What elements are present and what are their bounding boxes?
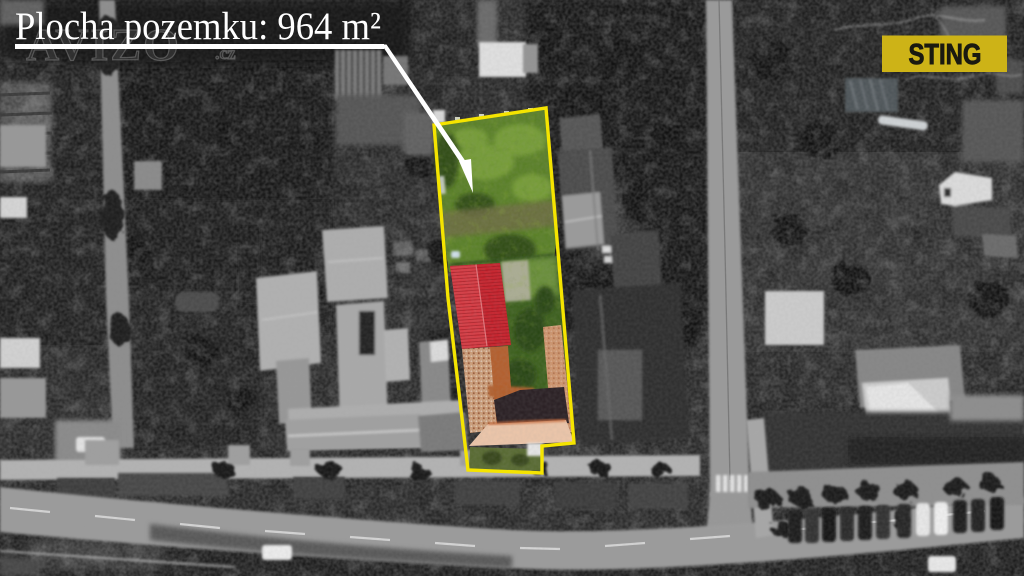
svg-text:STING: STING: [909, 39, 982, 71]
svg-text:Plocha pozemku: 964 m²: Plocha pozemku: 964 m²: [15, 5, 381, 48]
